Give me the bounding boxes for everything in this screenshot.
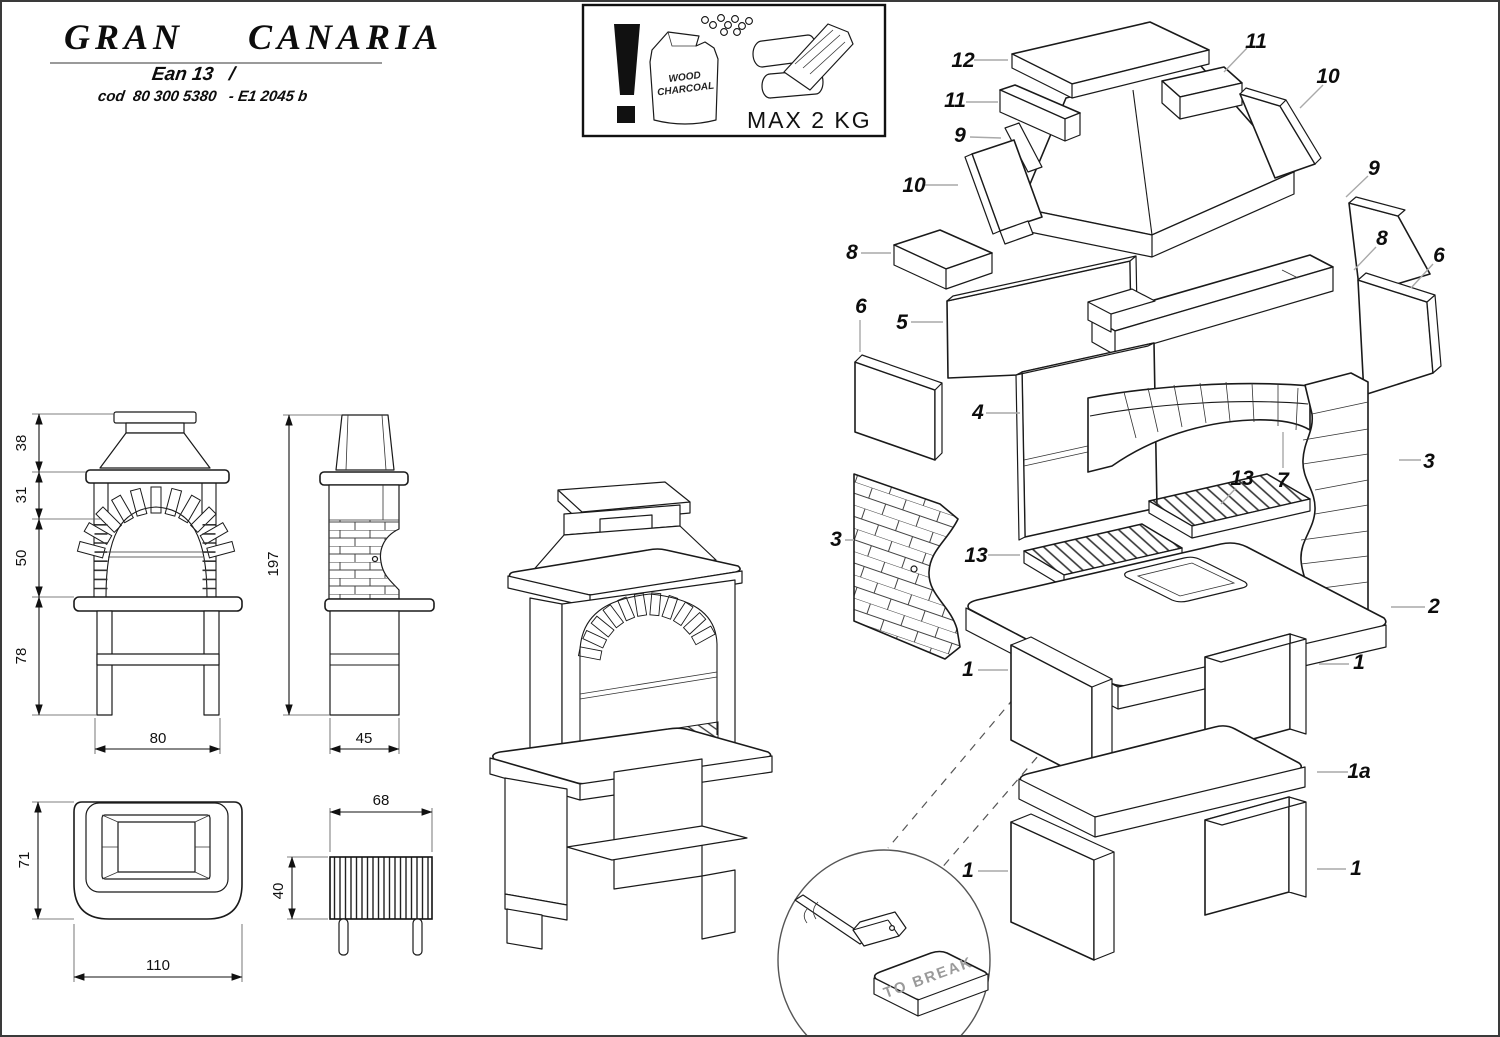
ean-code: Ean 13 / xyxy=(150,64,235,86)
product-title: GRAN CANARIA xyxy=(64,16,443,58)
part-label-13-right: 13 xyxy=(1230,467,1254,490)
dim-grate-depth: 40 xyxy=(270,883,287,900)
dim-front-arch: 31 xyxy=(13,487,30,504)
part-label-8-left: 8 xyxy=(846,241,858,264)
part-label-1-mid-right: 1 xyxy=(1353,651,1365,674)
part-label-6-right: 6 xyxy=(1433,244,1445,267)
part-label-9-right: 9 xyxy=(1368,157,1380,180)
dim-grate-width: 68 xyxy=(373,792,390,809)
assembled-view xyxy=(490,482,772,949)
instruction-sheet: WOOD CHARCOAL MAX 2 KG xyxy=(0,0,1500,1037)
part-label-3-left: 3 xyxy=(830,528,842,551)
part-label-12: 12 xyxy=(951,49,975,72)
front-view: 38 31 50 78 80 xyxy=(13,412,242,754)
part-label-11-right: 11 xyxy=(1245,30,1267,53)
product-code: cod 80 300 5380 - E1 2045 b xyxy=(97,88,309,105)
part-label-2: 2 xyxy=(1427,595,1440,618)
part-label-4: 4 xyxy=(971,401,984,424)
plan-view: 71 110 xyxy=(16,802,242,982)
arch-voussoirs xyxy=(77,487,234,558)
part-arch xyxy=(1088,382,1310,472)
part-label-6-left: 6 xyxy=(855,295,867,318)
part-label-1-bottom-right: 1 xyxy=(1350,857,1362,880)
to-break-inset: TO BREAK xyxy=(778,850,990,1037)
part-label-8-right: 8 xyxy=(1376,227,1388,250)
part-label-3-right: 3 xyxy=(1423,450,1435,473)
part-label-7: 7 xyxy=(1277,469,1290,492)
part-label-13-left: 13 xyxy=(964,544,988,567)
part-label-5: 5 xyxy=(896,311,908,334)
side-view: 197 45 xyxy=(265,415,434,754)
dim-side-height: 197 xyxy=(265,551,282,576)
dim-front-hood: 38 xyxy=(13,435,30,452)
exploded-view: 12 11 11 9 9 10 10 8 8 6 6 5 4 3 3 7 13 … xyxy=(830,22,1445,960)
title-block: GRAN CANARIA xyxy=(64,16,443,58)
part-label-10-right: 10 xyxy=(1316,65,1340,88)
dim-front-legs: 78 xyxy=(13,648,30,665)
dim-side-depth: 45 xyxy=(356,730,373,747)
max-weight-label: MAX 2 KG xyxy=(747,107,872,133)
part-label-1-bottom-left: 1 xyxy=(962,859,974,882)
part-label-1a-shelf: 1a xyxy=(1347,760,1371,783)
part-label-10-left: 10 xyxy=(902,174,926,197)
drawing-canvas: WOOD CHARCOAL MAX 2 KG xyxy=(2,2,1500,1037)
dim-plan-width: 110 xyxy=(146,957,170,974)
warning-box: WOOD CHARCOAL MAX 2 KG xyxy=(583,5,885,136)
dim-front-width: 80 xyxy=(150,730,167,747)
dim-plan-depth: 71 xyxy=(16,852,33,869)
part-label-9-left: 9 xyxy=(954,124,966,147)
part-label-11-left: 11 xyxy=(944,89,966,112)
part-label-1-mid-left: 1 xyxy=(962,658,974,681)
grate-view: 68 40 xyxy=(270,792,432,955)
dim-front-firebox: 50 xyxy=(13,550,30,567)
